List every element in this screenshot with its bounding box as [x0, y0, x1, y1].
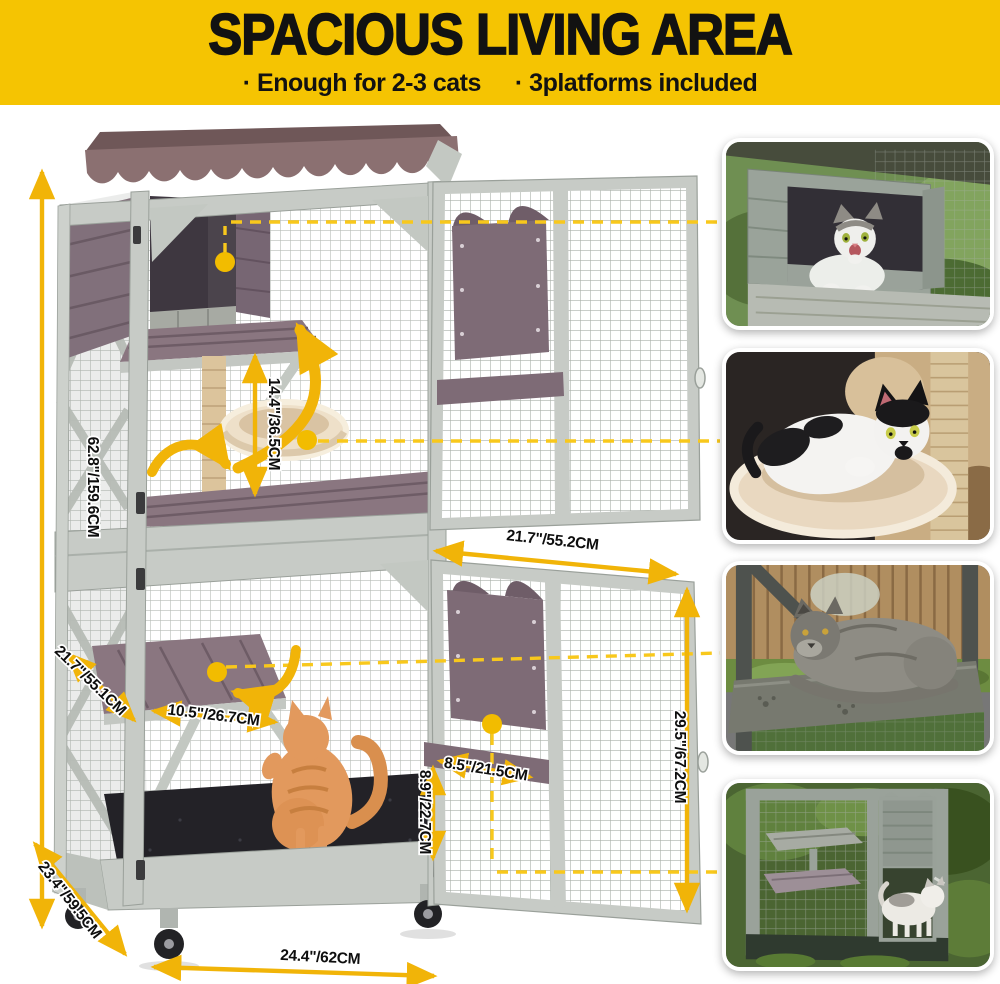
catio-structure	[52, 124, 462, 971]
roof	[85, 124, 462, 188]
dim-base-width: 24.4"/62CM	[280, 947, 361, 968]
inset-photo-platform	[722, 561, 994, 755]
header-banner: SPACIOUS LIVING AREA · Enough for 2-3 ca…	[0, 0, 1000, 105]
dim-door-width: 21.7"/55.2CM	[506, 527, 600, 554]
door-handle[interactable]	[698, 752, 708, 772]
cat-hammock	[222, 402, 346, 458]
inset-photo-cat-door	[722, 779, 994, 971]
inset-photo-hammock	[722, 348, 994, 544]
lower-mesh-door[interactable]	[424, 560, 708, 924]
subtitle-bullet-2: · 3platforms included	[515, 69, 757, 98]
dim-total-height: 62.8"/159.6CM	[84, 437, 101, 538]
upper-cat-flap	[452, 206, 549, 360]
page-title: SPACIOUS LIVING AREA	[208, 6, 792, 63]
lower-cat-flap	[447, 581, 546, 730]
upper-mesh-door[interactable]	[430, 176, 705, 530]
inset-photo-cat-house	[722, 138, 994, 330]
product-infographic: SPACIOUS LIVING AREA · Enough for 2-3 ca…	[0, 0, 1000, 984]
dim-door-height: 29.5"/67.2CM	[671, 711, 688, 804]
subtitle: · Enough for 2-3 cats · 3platforms inclu…	[243, 69, 757, 98]
dim-hammock-clearance: 14.4"/36.5CM	[265, 378, 282, 471]
dim-cat-door-height: 8.9"/22.7CM	[416, 770, 433, 854]
subtitle-bullet-1: · Enough for 2-3 cats	[243, 69, 481, 98]
door-handle[interactable]	[695, 368, 705, 388]
